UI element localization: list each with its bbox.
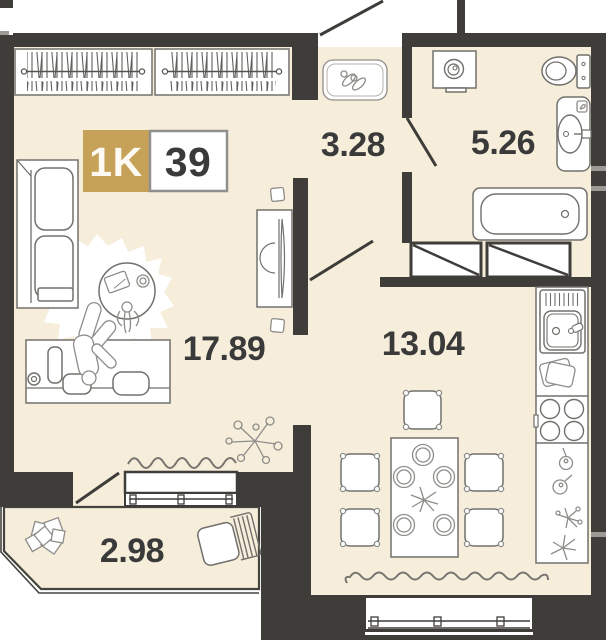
sofa-armrest [48,347,62,383]
hanger-rod-end [276,69,281,74]
wall-kitchen-left [293,425,311,472]
balcony-window-unit [125,472,237,506]
wall-top-bathroom [402,33,591,47]
room-label-bathroom: 5.26 [471,124,535,162]
person-head [82,371,96,385]
toilet [542,55,590,88]
sofa-cushion [38,288,73,301]
chair [464,508,503,546]
wall-stub-top [457,0,465,33]
entrance-door-leaf [320,1,383,35]
wall-balcony-band-left [0,472,73,507]
wall-top-living [13,33,318,47]
wall-right [591,33,606,640]
room-label-kitchen: 13.04 [382,325,465,363]
shaft-box [411,243,481,277]
bathroom-sink [557,97,591,171]
hanger-rod-end [162,69,167,74]
washing-machine [433,51,476,92]
bathtub [473,188,587,240]
wall-joint-mark [591,166,606,171]
kitchen-window [365,597,533,635]
sofa-armrest-knob [28,373,40,385]
wardrobe [15,49,289,95]
sofa-cushion [113,372,149,395]
shaft-box [487,243,570,277]
chair [340,453,379,491]
chair [464,453,503,491]
oven-handle [534,415,538,427]
kitchen-sink [540,290,585,353]
wall-bathroom-left-upper [402,47,412,118]
window-sill-line [365,632,533,635]
room-label-balcony: 2.98 [100,532,164,570]
wall-joint-mark [591,532,606,537]
wall-living-hall [293,178,308,335]
wall-bathroom-left-lower [402,172,412,243]
chair [403,390,441,429]
dining-table [391,438,458,557]
wall-entry-block [292,47,318,100]
faucet [582,130,591,138]
wall-top-left-corner [0,0,13,8]
hanger-rod-end [21,69,26,74]
floor-plan: 1K 39 [0,0,606,640]
room-label-hallway: 3.28 [321,126,385,164]
apartment-badge: 1K 39 [83,130,227,192]
chair [340,508,379,546]
wall-balcony-kitchen-corner [261,472,311,640]
sofa-chaise [17,160,78,308]
wall-joint-mark [0,31,9,35]
speaker [270,318,284,332]
speaker [270,187,284,201]
badge-area-label: 39 [165,139,212,185]
wall-left [0,35,14,472]
sofa-cushion [35,168,73,230]
wall-joint-mark [591,186,606,191]
hanger-rod-end [139,69,144,74]
wall-balcony-band-right [237,472,261,507]
room-label-living-room: 17.89 [183,330,266,368]
doormat [323,60,387,100]
ventilation-shafts [411,243,570,277]
badge-type-label: 1K [89,139,142,185]
